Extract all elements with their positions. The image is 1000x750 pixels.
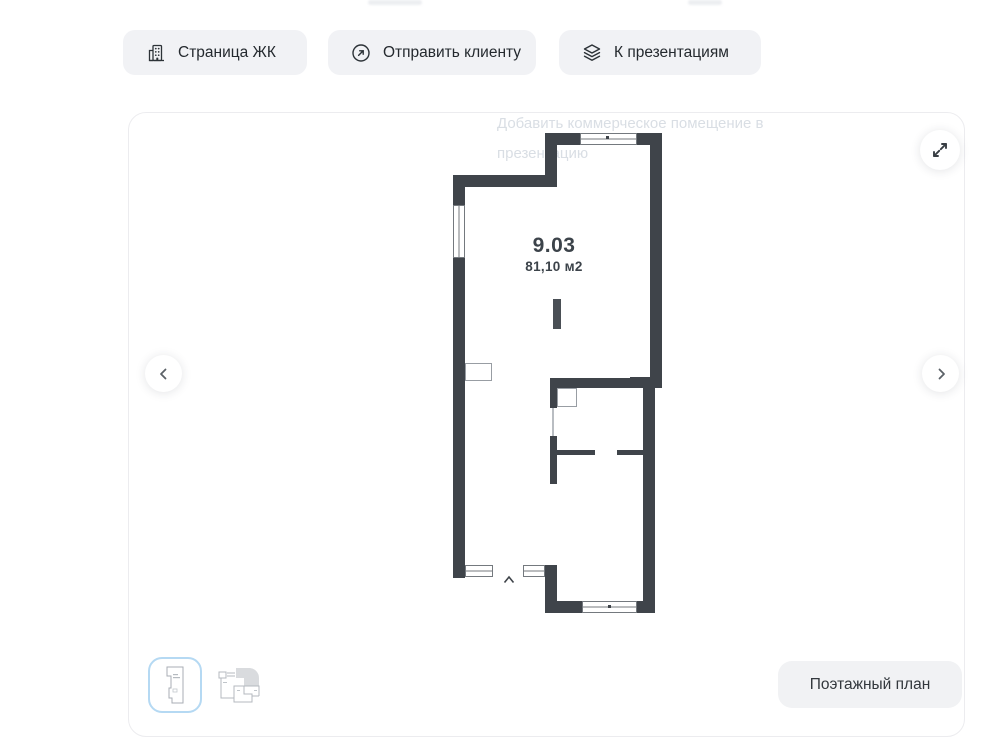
cropped-text-remnant [688, 0, 722, 5]
floor-plan-thumbnail-image [214, 664, 266, 708]
expand-arrows-icon [929, 139, 951, 161]
chevron-right-icon [932, 365, 950, 383]
entrance-caret-icon [502, 574, 516, 585]
window-marker [453, 205, 465, 258]
unit-plan-thumbnail-image [158, 662, 192, 708]
window-tick [606, 136, 609, 139]
building-icon [145, 42, 167, 64]
window-marker [523, 565, 545, 577]
window-marker [580, 133, 637, 145]
to-presentations-button[interactable]: К презентациям [559, 30, 761, 75]
wall-segment [550, 436, 557, 484]
door-opening [552, 408, 554, 436]
arrow-up-right-circle-icon [350, 42, 372, 64]
thumbnail-unit-plan[interactable] [148, 657, 202, 713]
thumbnail-floor-plan[interactable] [211, 661, 269, 711]
layers-icon [581, 42, 603, 64]
cropped-text-remnant [368, 0, 422, 5]
fullscreen-button[interactable] [920, 130, 960, 170]
wall-segment [550, 450, 595, 455]
send-to-client-button[interactable]: Отправить клиенту [328, 30, 536, 75]
shaft-outline [557, 388, 577, 407]
next-plan-button[interactable] [922, 355, 959, 392]
unit-area: 81,10 м2 [494, 259, 614, 274]
shaft-outline [465, 363, 492, 381]
zhk-page-button[interactable]: Страница ЖК [123, 30, 307, 75]
to-presentations-button-label: К презентациям [614, 44, 729, 62]
window-tick [608, 605, 611, 608]
wall-segment [643, 378, 655, 613]
column-stub [553, 299, 561, 329]
floor-plan-view-button[interactable]: Поэтажный план [778, 661, 962, 708]
wall-segment [453, 175, 557, 187]
unit-number: 9.03 [494, 234, 614, 258]
window-marker [465, 565, 493, 577]
wall-segment [550, 378, 557, 408]
zhk-page-button-label: Страница ЖК [178, 44, 276, 62]
wall-segment [617, 450, 643, 455]
unit-card-page: { "toolbar": { "page_button": "Страница … [0, 0, 1000, 750]
wall-segment [650, 133, 662, 387]
wall-segment [550, 378, 643, 388]
prev-plan-button[interactable] [145, 355, 182, 392]
chevron-left-icon [155, 365, 173, 383]
send-to-client-button-label: Отправить клиенту [383, 44, 521, 62]
plan-viewer-panel [128, 112, 965, 737]
